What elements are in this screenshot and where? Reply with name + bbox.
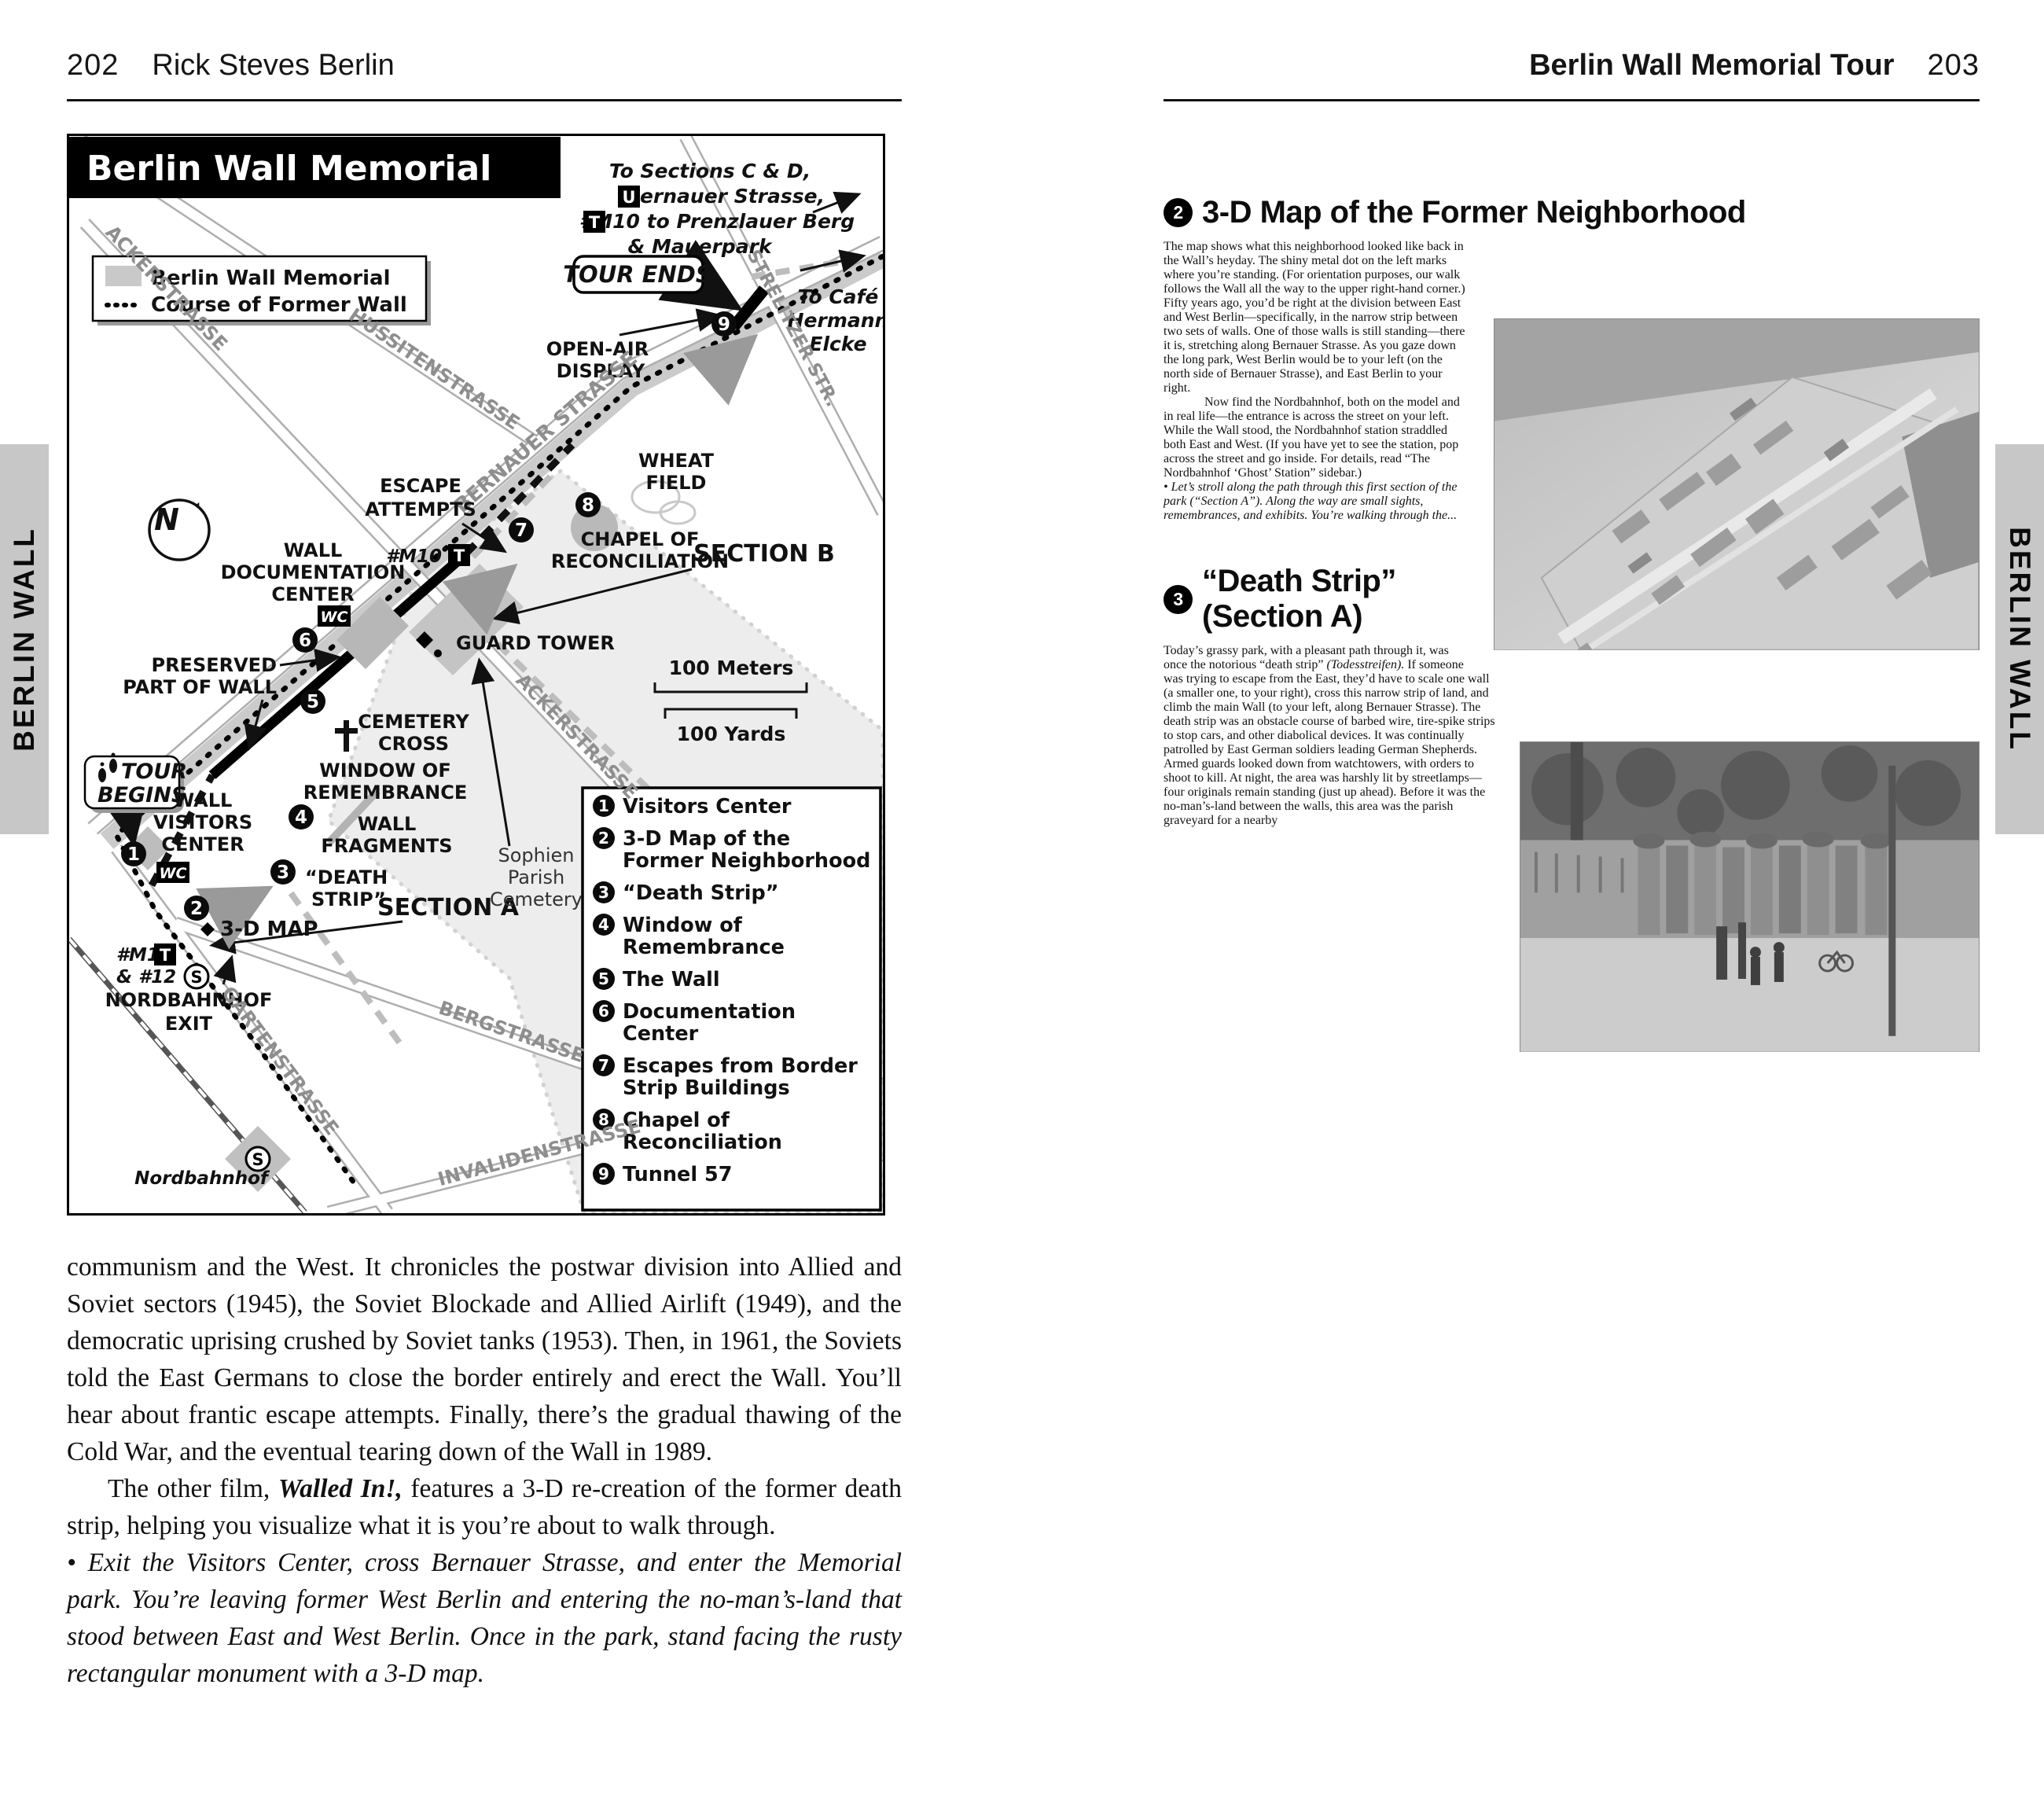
svg-text:U: U: [622, 188, 635, 207]
map-label: WALL: [174, 789, 233, 811]
svg-text:“Death Strip”: “Death Strip”: [623, 881, 779, 905]
map-label: CROSS: [378, 733, 449, 755]
svg-text:3: 3: [598, 883, 609, 902]
chapter-title: Berlin Wall Memorial Tour: [1529, 49, 1895, 82]
section-heading-text: 3-D Map of the Former Neighborhood: [1202, 195, 1746, 230]
text-run: • Let’s stroll along the path through th…: [1164, 480, 1457, 522]
tram-icon: T: [448, 544, 470, 566]
footprints-icon: [98, 768, 106, 782]
section-b-label: SECTION B: [693, 540, 835, 568]
map-label: CHAPEL OF: [581, 528, 700, 550]
tram-icon: T: [154, 943, 176, 966]
svg-text:4: 4: [598, 915, 609, 934]
svg-text:Reconciliation: Reconciliation: [623, 1131, 782, 1154]
map-marker-5: 5: [300, 689, 325, 714]
svg-text:Strip Buildings: Strip Buildings: [623, 1076, 790, 1100]
svg-text:Tunnel 57: Tunnel 57: [623, 1163, 732, 1186]
left-page-body: communism and the West. It chronicles th…: [67, 1249, 902, 1692]
map-label: CENTER: [271, 583, 354, 605]
map-label: WINDOW OF: [319, 760, 450, 782]
text-run: Walled In!,: [278, 1474, 403, 1503]
map-label: ESCAPE: [380, 475, 461, 497]
svg-text:9: 9: [598, 1164, 609, 1183]
berlin-wall-memorial-map: Berlin Wall MemorialCourse of Former Wal…: [67, 134, 885, 1216]
book-spread: BERLIN WALL BERLIN WALL 202Rick Steves B…: [0, 0, 2044, 1817]
sbahn-icon: S: [246, 1147, 270, 1171]
svg-text:5: 5: [307, 692, 319, 712]
wc-icon: WC: [318, 605, 351, 627]
section-heading: 23-D Map of the Former Neighborhood: [1164, 195, 1980, 230]
map-label: #M10 to Prenzlauer Berg: [579, 210, 855, 233]
paragraph: • Exit the Visitors Center, cross Bernau…: [67, 1544, 902, 1692]
photo-death-strip: [1520, 741, 1980, 1052]
svg-text:2: 2: [190, 899, 203, 919]
map-label: Cemetery: [490, 888, 583, 910]
svg-text:6: 6: [299, 631, 311, 651]
map-label: WHEAT: [638, 450, 715, 472]
text-run: The map shows what this neighborhood loo…: [1164, 240, 1465, 395]
page-number: 202: [67, 49, 119, 82]
map-marker-7: 7: [509, 517, 534, 543]
svg-text:7: 7: [515, 520, 528, 541]
book-title: Rick Steves Berlin: [152, 49, 394, 82]
tram-icon: T: [583, 211, 605, 233]
map-label: Bernauer Strasse,: [625, 185, 825, 208]
side-tab-label: BERLIN WALL: [2003, 527, 2036, 752]
right-running-head: Berlin Wall Memorial Tour203: [1164, 49, 1980, 83]
map-label: Sophien: [498, 844, 574, 866]
svg-text:Visitors Center: Visitors Center: [623, 795, 792, 818]
map-label: STRIP”: [311, 888, 386, 910]
right-page-body: 23-D Map of the Former Neighborhood: [1164, 195, 1980, 1065]
map-label: EXIT: [165, 1013, 213, 1035]
text-run: (Todesstreifen).: [1327, 658, 1405, 671]
svg-text:T: T: [589, 213, 601, 232]
section-body: Today’s grassy park, with a pleasant pat…: [1164, 644, 1980, 828]
section-number-icon: 2: [1164, 198, 1193, 227]
map-label: Elcke: [809, 333, 866, 355]
svg-text:T: T: [454, 546, 465, 565]
map-marker-6: 6: [292, 627, 318, 653]
text-run: Now find the Nordbahnhof, both on the mo…: [1164, 395, 1460, 480]
tour-ends-label: TOUR ENDS: [563, 261, 711, 288]
left-running-head: 202Rick Steves Berlin: [67, 49, 902, 83]
svg-text:9: 9: [718, 314, 730, 335]
svg-text:Remembrance: Remembrance: [623, 936, 785, 959]
photo-3d-model: [1494, 318, 1980, 650]
svg-text:4: 4: [295, 807, 307, 828]
svg-text:7: 7: [598, 1056, 609, 1075]
map-marker-3: 3: [270, 859, 296, 885]
svg-text:WC: WC: [160, 865, 187, 882]
svg-text:5: 5: [598, 969, 609, 988]
map-label: 100 Yards: [677, 723, 786, 745]
map-label: CENTER: [161, 833, 244, 855]
map-label: REMEMBRANCE: [303, 782, 467, 804]
map-label: DOCUMENTATION: [221, 561, 406, 583]
map-label: 3-D MAP: [220, 918, 318, 941]
map-marker-2: 2: [184, 896, 209, 921]
map-label: PRESERVED: [151, 654, 277, 676]
compass-n: N: [154, 502, 179, 537]
svg-text:Former Neighborhood: Former Neighborhood: [623, 849, 870, 873]
map-label: “DEATH: [305, 866, 388, 888]
map-label: FRAGMENTS: [321, 835, 452, 857]
svg-text:Documentation: Documentation: [623, 1000, 796, 1024]
map-marker-1: 1: [121, 841, 146, 866]
text-run: The other film,: [108, 1474, 278, 1503]
svg-text:Escapes from Border: Escapes from Border: [623, 1054, 858, 1078]
map-label: ATTEMPTS: [365, 498, 476, 520]
section-body: The map shows what this neighborhood loo…: [1164, 240, 1980, 523]
map-label: PART OF WALL: [123, 676, 277, 698]
legend-entry: Berlin Wall Memorial: [151, 267, 390, 290]
map-label: VISITORS: [153, 811, 252, 833]
section-number-icon: 3: [1164, 585, 1193, 614]
map-label: & #12: [116, 967, 176, 988]
header-rule-right: [1164, 99, 1980, 101]
map-label: GUARD TOWER: [456, 632, 615, 654]
side-tab-right: BERLIN WALL: [1995, 444, 2044, 834]
map-label: Nordbahnhof: [134, 1168, 270, 1189]
svg-text:S: S: [252, 1150, 263, 1169]
map-label: CEMETERY: [358, 711, 469, 733]
sbahn-icon: S: [185, 965, 208, 988]
section-3d-map: 23-D Map of the Former Neighborhood: [1164, 195, 1980, 523]
map-label: GARTENSTRASSE: [217, 982, 343, 1139]
text-run: If someone was trying to escape from the…: [1164, 658, 1495, 827]
map-label: To Café: [798, 285, 879, 308]
svg-text:The Wall: The Wall: [623, 968, 720, 991]
svg-text:3: 3: [277, 863, 289, 883]
map-label: Parish: [508, 866, 564, 888]
text-run: • Exit the Visitors Center, cross Bernau…: [67, 1548, 902, 1688]
map-title: Berlin Wall Memorial: [86, 149, 491, 189]
map-label: HUSSITENSTRASSE: [345, 303, 524, 434]
section-heading-text: “Death Strip” (Section A): [1202, 564, 1472, 634]
svg-text:1: 1: [598, 796, 609, 815]
map-label: TOUR: [121, 760, 187, 784]
map-label: FIELD: [646, 472, 707, 494]
paragraph: communism and the West. It chronicles th…: [67, 1249, 902, 1470]
svg-text:2: 2: [598, 829, 609, 848]
section-heading: 3“Death Strip” (Section A): [1164, 564, 1472, 634]
side-tab-left: BERLIN WALL: [0, 444, 49, 834]
text-run: communism and the West. It chronicles th…: [67, 1252, 902, 1466]
ubahn-icon: U: [618, 186, 640, 208]
svg-text:Center: Center: [623, 1022, 699, 1046]
map-marker-9: 9: [711, 311, 737, 337]
map-label: WALL: [358, 813, 417, 835]
header-rule-left: [67, 99, 902, 101]
svg-text:T: T: [160, 946, 171, 965]
map-label: 100 Meters: [669, 657, 794, 679]
page-number: 203: [1928, 49, 1980, 82]
map-marker-4: 4: [289, 804, 314, 829]
svg-text:Window of: Window of: [623, 914, 743, 937]
map-marker-8: 8: [575, 492, 601, 517]
wc-icon: WC: [156, 862, 189, 883]
svg-text:1: 1: [127, 844, 140, 865]
paragraph: The other film, Walled In!, features a 3…: [67, 1470, 902, 1544]
map-canvas: Berlin Wall MemorialCourse of Former Wal…: [69, 136, 883, 1213]
svg-text:6: 6: [598, 1002, 609, 1021]
svg-text:3-D Map of the: 3-D Map of the: [623, 827, 790, 851]
svg-text:S: S: [190, 968, 202, 987]
side-tab-label: BERLIN WALL: [8, 527, 41, 752]
map-label: WALL: [284, 539, 343, 561]
svg-text:8: 8: [582, 495, 594, 516]
svg-text:WC: WC: [321, 609, 348, 626]
map-label: To Sections C & D,: [609, 160, 811, 182]
